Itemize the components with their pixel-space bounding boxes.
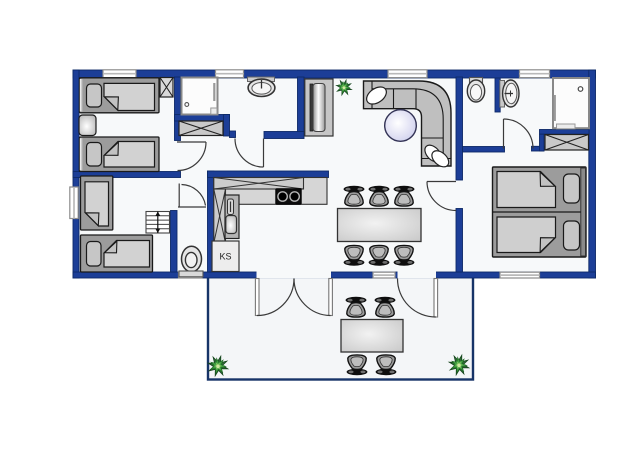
svg-text:KS: KS [219,252,231,262]
